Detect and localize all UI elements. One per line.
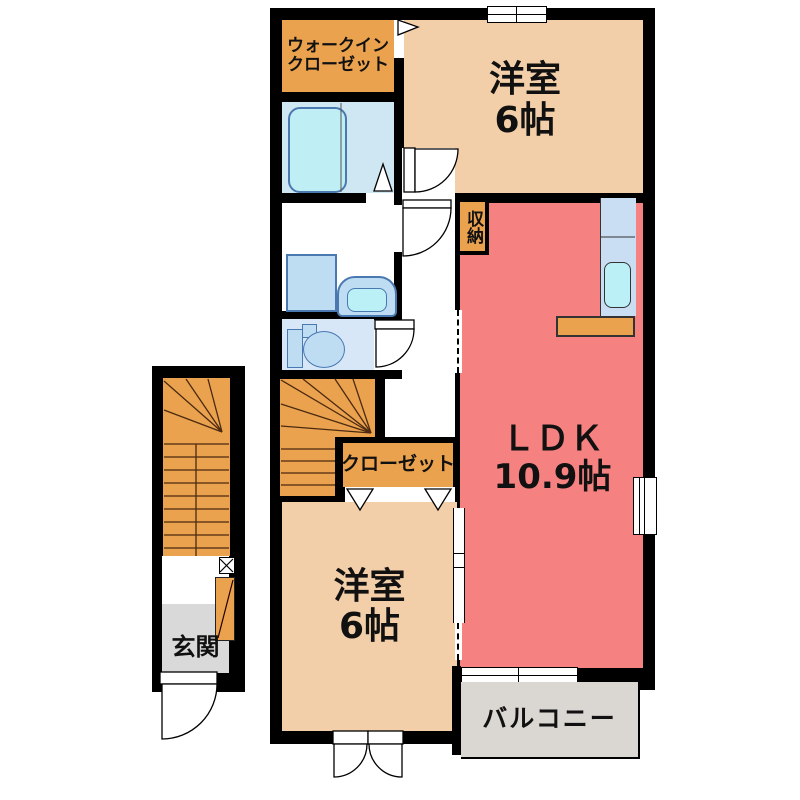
staircase-upper-winders (280, 379, 375, 437)
toilet-door-gap (374, 320, 402, 370)
bathtub (288, 107, 347, 193)
closet-label: クローゼット (343, 443, 453, 487)
ldk-opening-upper (455, 310, 462, 373)
washbasin (337, 276, 397, 317)
bedroom-bottom-label: 洋室 6帖 (282, 552, 457, 662)
top-window (487, 6, 547, 23)
washbasin-bowl (347, 288, 387, 312)
bedroom-bottom-name: 洋室 (333, 567, 405, 607)
ldk-name: ＬＤＫ (502, 420, 604, 458)
bathroom-door-gap (366, 193, 394, 203)
floor-plan: ウォークイン クローゼット 洋室 6帖 収納 ＬＤＫ 10.9帖 クローゼット … (0, 0, 800, 800)
kitchen-sink (604, 262, 631, 308)
bedroom-top-name: 洋室 (489, 60, 561, 100)
bedroom-top-size: 6帖 (494, 101, 555, 141)
ldk-size: 10.9帖 (494, 458, 612, 496)
ldk-label: ＬＤＫ 10.9帖 (460, 402, 645, 514)
hallway-lower (385, 379, 455, 437)
staircase-lower (163, 378, 230, 556)
walk-in-closet-label: ウォークイン クローゼット (283, 24, 393, 88)
closet-bifold-doors (345, 487, 455, 503)
washroom-door-gap (394, 205, 402, 252)
toilet-tank (287, 329, 303, 368)
balcony-left-wall (452, 666, 461, 755)
balcony-label: バルコニー (461, 698, 638, 740)
washing-machine-pan (286, 254, 337, 312)
bedroom-top-label: 洋室 6帖 (420, 48, 630, 153)
pipe-space-box (219, 557, 235, 574)
bedroom-bottom-size: 6帖 (339, 607, 400, 647)
walk-in-closet-door-gap (394, 20, 404, 58)
storage-label: 収納 (460, 202, 485, 251)
kitchen-counter (556, 316, 635, 337)
staircase-upper-treads (280, 437, 335, 496)
toilet-bowl (303, 331, 345, 368)
entrance-label: 玄関 (162, 628, 229, 666)
